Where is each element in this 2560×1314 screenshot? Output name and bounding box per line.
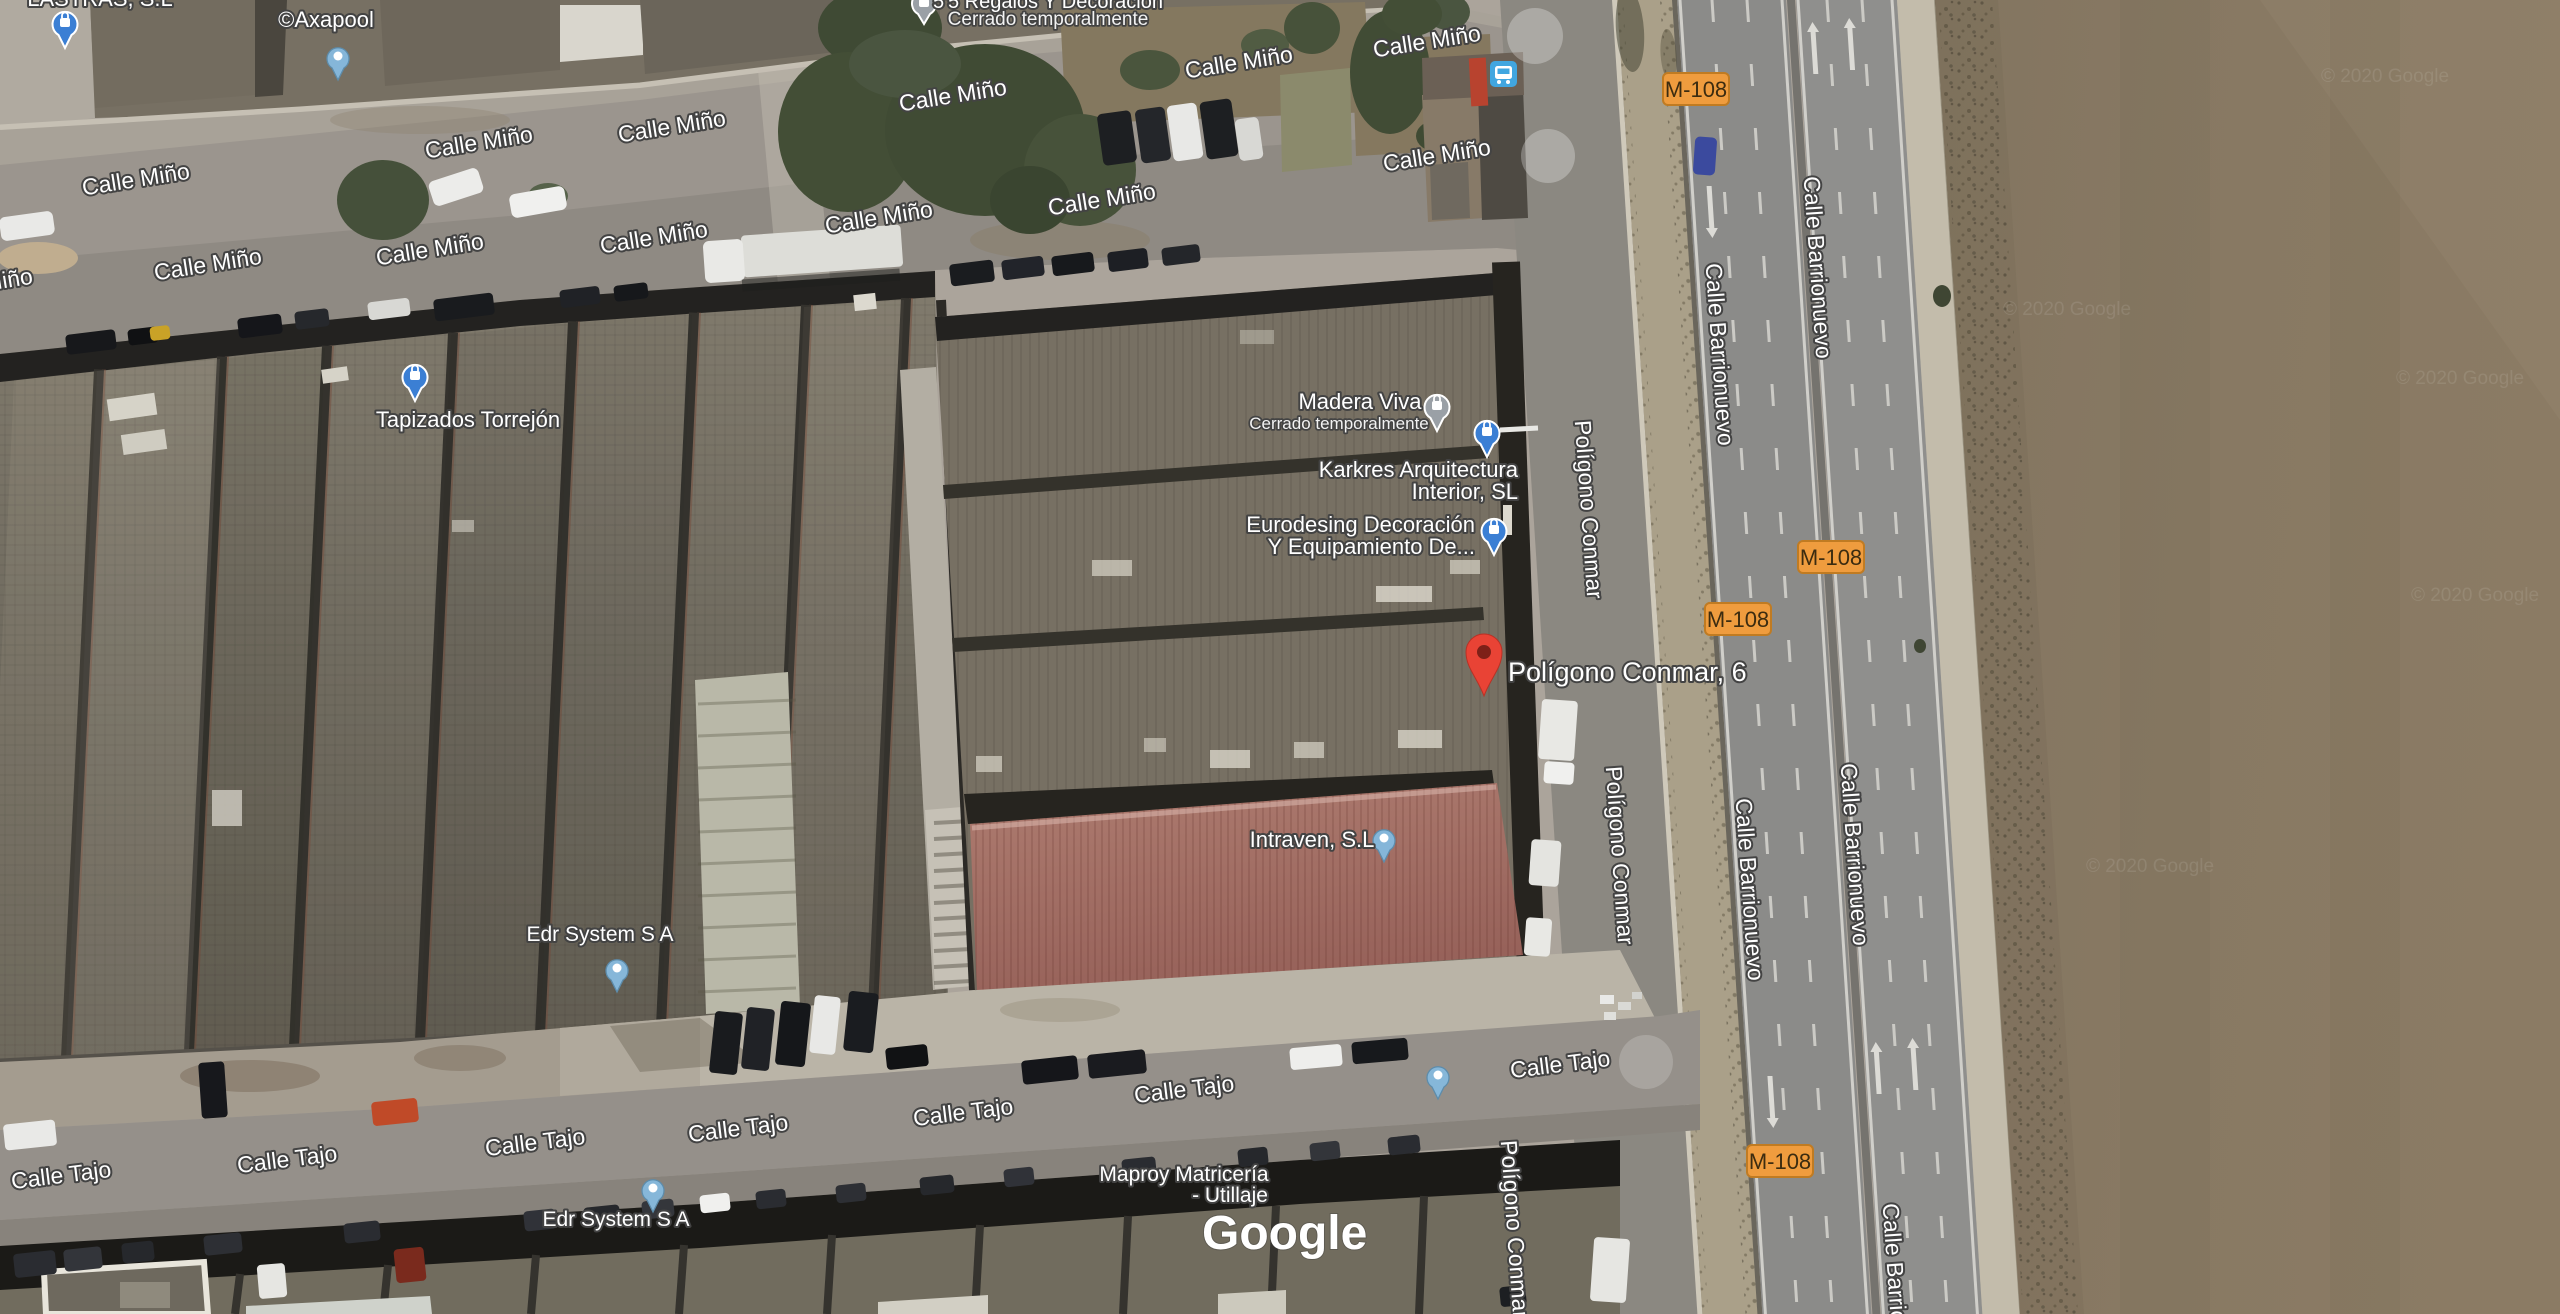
svg-text:©Axapool: ©Axapool [278, 7, 374, 32]
svg-text:© 2020 Google: © 2020 Google [2086, 856, 2214, 877]
svg-text:- Utillaje: - Utillaje [1192, 1184, 1268, 1207]
svg-text:Y Equipamiento De...: Y Equipamiento De... [1268, 534, 1476, 559]
svg-text:Cerrado temporalmente: Cerrado temporalmente [948, 9, 1149, 30]
svg-text:M-108: M-108 [1707, 607, 1769, 632]
svg-text:M-108: M-108 [1749, 1149, 1811, 1174]
svg-text:Edr System S A: Edr System S A [542, 1208, 689, 1231]
svg-text:Tapizados Torrejón: Tapizados Torrejón [376, 407, 560, 432]
svg-text:© 2020 Google: © 2020 Google [2321, 66, 2449, 87]
svg-text:© 2020 Google: © 2020 Google [2396, 368, 2524, 389]
svg-text:© 2020 Google: © 2020 Google [2003, 299, 2131, 320]
svg-text:© 2020 Google: © 2020 Google [2411, 585, 2539, 606]
svg-text:Madera Viva: Madera Viva [1298, 389, 1422, 414]
svg-text:Google: Google [1202, 1207, 1367, 1260]
svg-text:Edr System S A: Edr System S A [526, 923, 673, 946]
svg-text:Interior, SL: Interior, SL [1412, 479, 1518, 504]
svg-text:M-108: M-108 [1665, 77, 1727, 102]
svg-text:Intraven, S.L: Intraven, S.L [1250, 827, 1375, 852]
svg-text:LASTRAS, S.L: LASTRAS, S.L [27, 0, 173, 11]
svg-text:Cerrado temporalmente: Cerrado temporalmente [1249, 414, 1429, 433]
svg-text:Maproy Matricería: Maproy Matricería [1099, 1163, 1269, 1186]
svg-text:M-108: M-108 [1800, 545, 1862, 570]
svg-text:Polígono Conmar, 6: Polígono Conmar, 6 [1508, 657, 1747, 687]
